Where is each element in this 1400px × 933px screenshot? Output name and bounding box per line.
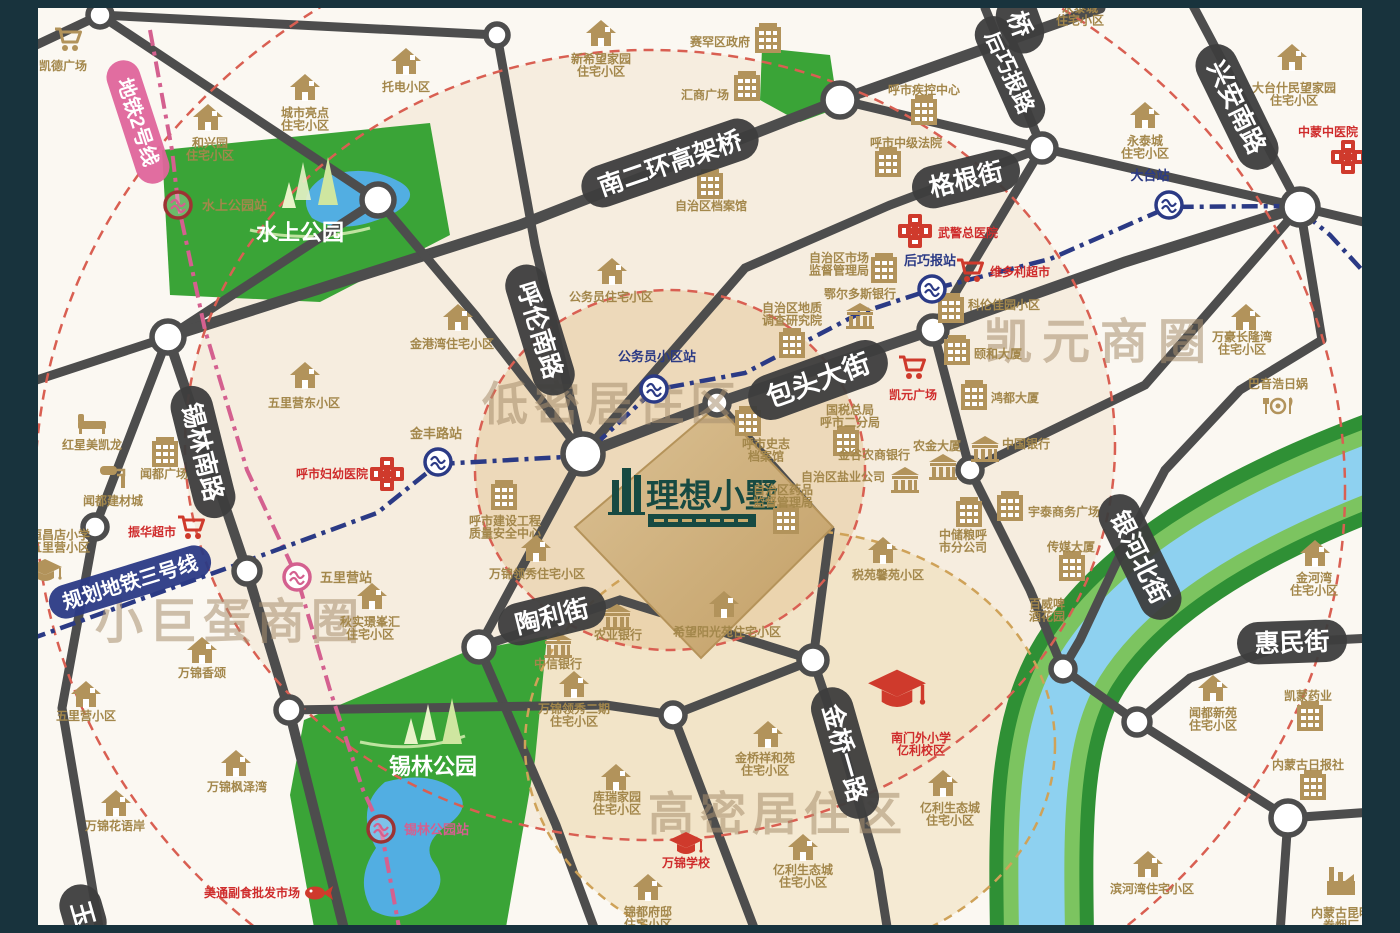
poi-label: 住宅小区 [281, 118, 329, 133]
bldg-icon [871, 253, 897, 283]
poi-label: 金谷农商银行 [837, 447, 910, 462]
poi-label: 凯元广场 [889, 387, 937, 402]
poi-label: 万锦花语岸 [84, 818, 145, 833]
poi-label: 红星美凯龙 [62, 437, 122, 452]
poi-label: 五里营小区 [30, 540, 90, 555]
metro-logo-icon [1156, 192, 1182, 218]
poi-label: 调查研究院 [762, 313, 822, 328]
poi-label: 住宅小区 [1121, 146, 1169, 161]
poi-label: 凯蒙药业 [1284, 688, 1332, 703]
metro-station-label: 后巧报站 [904, 253, 956, 268]
poi-label: 质量安全中心 [469, 526, 541, 541]
district-watermark: 凯元商圈 [984, 316, 1216, 369]
poi-label: 凯德广场 [39, 58, 87, 73]
poi-label: 五里营东小区 [268, 395, 340, 410]
poi-label: 滨河湾住宅小区 [1110, 881, 1194, 896]
park-name-shuishang: 水上公园 [256, 220, 344, 245]
poi-label: 万锦学校 [661, 855, 711, 870]
metro-logo-icon [165, 192, 191, 218]
poi-label: 住宅小区 [186, 148, 234, 163]
poi-label: 住宅小区 [346, 627, 394, 642]
metro-logo-icon [425, 449, 451, 475]
poi-label: 监督管理局 [809, 263, 869, 278]
bldg-icon [997, 491, 1023, 521]
poi-label: 住宅小区 [1189, 718, 1237, 733]
poi-label: 住宅小区 [1270, 93, 1318, 108]
poi-label: 金港湾住宅小区 [409, 336, 494, 351]
poi-label: 鸿都大厦 [991, 390, 1040, 405]
metro-station-label: 公务员小区站 [618, 349, 696, 364]
poi-label: 自治区档案馆 [675, 198, 747, 213]
poi-label: 内蒙古日报社 [1272, 757, 1344, 772]
poi-label: 中国银行 [1002, 436, 1050, 451]
poi-label: 呼市二分局 [820, 415, 880, 430]
poi-label: 颐和大厦 [974, 346, 1023, 361]
map-canvas: 理想小墅 水上公园 锡林公园 低密居住区凯元商圈小巨蛋商圈高密居住区 凯德广场 [0, 0, 1400, 933]
metro-logo-icon [284, 564, 310, 590]
poi-label: 档案馆 [748, 449, 784, 464]
bldg-icon [152, 437, 178, 467]
poi-label: 托电小区 [382, 79, 430, 94]
poi-label: 酒花园 [1029, 609, 1065, 624]
location-map: 理想小墅 水上公园 锡林公园 低密居住区凯元商圈小巨蛋商圈高密居住区 凯德广场 [0, 0, 1400, 933]
poi-label: 赛罕区政府 [689, 34, 750, 49]
map-poi: 百威啤酒花园 [1029, 596, 1065, 624]
road-name: 惠民街 [1254, 627, 1330, 659]
poi-label: 五里营小区 [56, 708, 116, 723]
poi-label: 亿利校区 [897, 743, 945, 758]
bldg-icon [779, 328, 805, 358]
poi-label: 巴音浩日娲 [1248, 376, 1308, 391]
poi-label: 农金大厦 [912, 438, 962, 453]
poi-label: 住宅小区 [1056, 13, 1104, 28]
park-name-xilin: 锡林公园 [389, 754, 477, 779]
bldg-icon [911, 95, 937, 125]
bldg-icon [734, 71, 760, 101]
poi-label: 税苑馨苑小区 [852, 567, 924, 582]
poi-label: 武警总医院 [938, 225, 998, 240]
poi-label: 振华超市 [128, 524, 176, 539]
bldg-icon [1300, 770, 1326, 800]
poi-label: 万锦香颂 [177, 665, 226, 680]
poi-label: 住宅小区 [1290, 583, 1338, 598]
poi-label: 住宅小区 [550, 714, 598, 729]
poi-label: 维多利超市 [990, 264, 1050, 279]
poi-label: 住宅小区 [926, 813, 974, 828]
poi-label: 住宅小区 [779, 875, 827, 890]
metro-logo-icon [368, 816, 394, 842]
poi-label: 宇泰商务广场 [1028, 504, 1100, 519]
metro-station-label: 大台站 [1130, 168, 1169, 183]
poi-label: 中信银行 [534, 656, 582, 671]
bldg-icon [755, 23, 781, 53]
metro-logo-icon [641, 376, 667, 402]
poi-label: 万锦领秀住宅小区 [488, 566, 585, 581]
poi-label: 监督管理局 [753, 495, 813, 510]
metro-station-label: 锡林公园站 [404, 822, 469, 837]
metro-station-label: 金丰路站 [409, 426, 462, 441]
poi-label: 科伦佳园小区 [968, 297, 1040, 312]
map-poi: 美通副食批发市场 [204, 885, 333, 900]
district-watermark: 小巨蛋商圈 [95, 596, 365, 649]
poi-label: 闻都广场 [140, 466, 188, 481]
poi-label: 住宅小区 [593, 802, 641, 817]
poi-label: 呼市妇幼医院 [296, 466, 368, 481]
poi-label: 汇商广场 [681, 87, 729, 102]
bldg-icon [491, 480, 517, 510]
poi-label: 住宅小区 [577, 64, 625, 79]
poi-label: 传媒大厦 [1046, 539, 1096, 554]
bldg-icon [961, 380, 987, 410]
poi-label: 希望阳光苑住宅小区 [672, 624, 781, 639]
metro-station-label: 五里营站 [320, 570, 372, 585]
poi-label: 自治区盐业公司 [801, 469, 885, 484]
poi-label: 呼市中级法院 [870, 135, 942, 150]
poi-label: 美通副食批发市场 [204, 885, 300, 900]
metro-logo-icon [919, 276, 945, 302]
poi-label: 万锦枫泽湾 [206, 779, 267, 794]
metro-station-label: 水上公园站 [202, 198, 267, 213]
bldg-icon [875, 147, 901, 177]
bldg-icon [1059, 551, 1085, 581]
poi-label: 呼市疾控中心 [888, 82, 960, 97]
poi-label: 公务员住宅小区 [569, 289, 653, 304]
poi-label: 农业银行 [593, 627, 642, 642]
poi-label: 市分公司 [939, 540, 987, 555]
poi-label: 住宅小区 [741, 763, 789, 778]
bldg-icon [944, 335, 970, 365]
district-watermark: 低密居住区 [482, 378, 742, 430]
bldg-icon [1297, 701, 1323, 731]
poi-label: 鄂尔多斯银行 [824, 286, 896, 301]
poi-label: 中蒙中医院 [1298, 124, 1358, 139]
poi-label: 闻都建材城 [83, 493, 143, 508]
map-poi: 自治区盐业公司 [801, 469, 885, 484]
poi-label: 住宅小区 [1218, 342, 1266, 357]
road-label: 惠民街 [1236, 619, 1347, 665]
bldg-icon [956, 497, 982, 527]
